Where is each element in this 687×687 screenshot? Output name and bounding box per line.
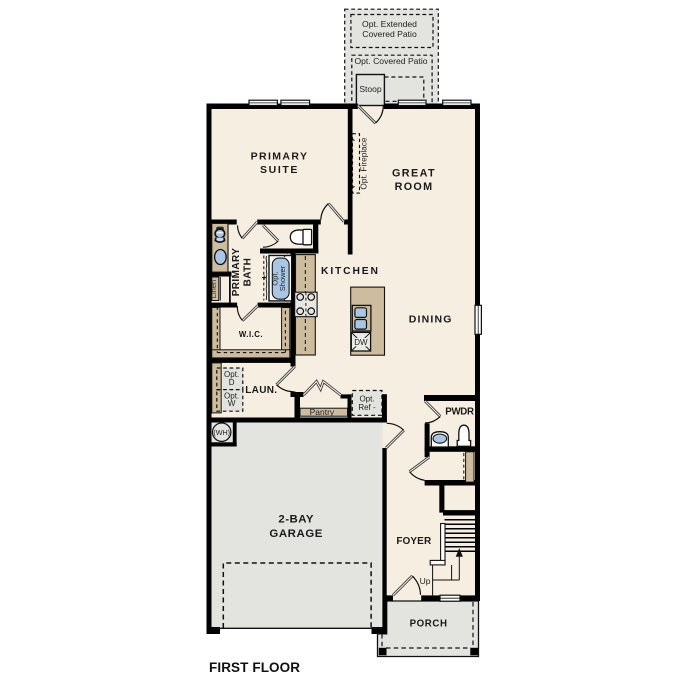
svg-text:BATH: BATH xyxy=(243,258,254,287)
svg-text:Ref -: Ref - xyxy=(358,403,376,412)
svg-text:Pantry: Pantry xyxy=(310,407,335,417)
svg-text:PRIMARY: PRIMARY xyxy=(231,248,242,297)
svg-text:DW: DW xyxy=(354,338,368,347)
svg-text:Opt. Extended: Opt. Extended xyxy=(362,19,417,29)
svg-text:SUITE: SUITE xyxy=(260,164,299,176)
svg-text:Covered Patio: Covered Patio xyxy=(362,29,417,39)
svg-text:Up: Up xyxy=(420,576,431,586)
svg-text:ROOM: ROOM xyxy=(395,181,434,193)
svg-text:LAUN.: LAUN. xyxy=(245,385,277,396)
svg-text:(WH): (WH) xyxy=(213,428,230,437)
svg-text:DINING: DINING xyxy=(409,313,453,325)
svg-text:Linen: Linen xyxy=(209,280,218,298)
svg-text:PRIMARY: PRIMARY xyxy=(251,151,309,163)
svg-text:Stoop: Stoop xyxy=(359,84,381,94)
svg-text:W: W xyxy=(228,399,236,408)
svg-text:D: D xyxy=(229,378,235,387)
svg-text:FOYER: FOYER xyxy=(396,536,432,547)
svg-text:PORCH: PORCH xyxy=(410,619,448,630)
svg-text:FIRST FLOOR: FIRST FLOOR xyxy=(209,660,300,675)
svg-text:PWDR: PWDR xyxy=(445,406,474,417)
svg-text:Shower: Shower xyxy=(278,265,287,291)
svg-text:2-BAY: 2-BAY xyxy=(278,514,314,526)
svg-text:Opt. Fireplace: Opt. Fireplace xyxy=(359,137,369,189)
svg-text:Opt. Covered Patio: Opt. Covered Patio xyxy=(354,56,427,66)
svg-text:GREAT: GREAT xyxy=(392,168,436,180)
svg-text:GARAGE: GARAGE xyxy=(269,528,323,540)
svg-text:KITCHEN: KITCHEN xyxy=(321,266,380,277)
svg-text:W.I.C.: W.I.C. xyxy=(239,330,263,339)
